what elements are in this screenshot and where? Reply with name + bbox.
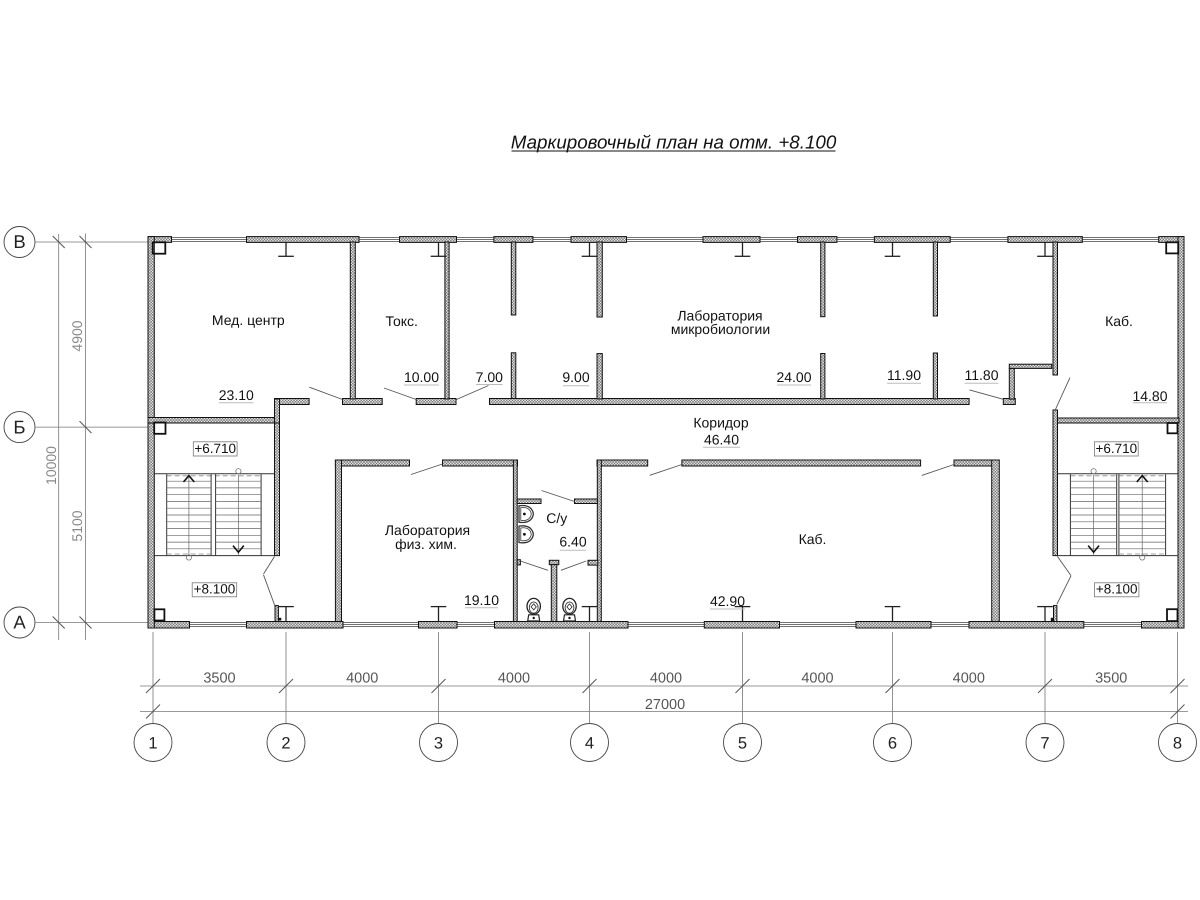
svg-text:6: 6	[888, 734, 897, 752]
svg-text:А: А	[13, 612, 26, 633]
svg-text:10000: 10000	[43, 446, 59, 485]
svg-text:физ. хим.: физ. хим.	[395, 536, 457, 552]
svg-text:+6.710: +6.710	[1095, 441, 1137, 456]
svg-text:9.00: 9.00	[562, 369, 589, 385]
svg-text:42.90: 42.90	[710, 593, 745, 609]
svg-text:7: 7	[1040, 734, 1049, 752]
svg-text:8: 8	[1173, 734, 1182, 752]
svg-text:Мед. центр: Мед. центр	[212, 312, 285, 328]
svg-text:Каб.: Каб.	[1105, 313, 1133, 329]
svg-text:4000: 4000	[498, 671, 530, 687]
svg-text:27000: 27000	[645, 697, 685, 713]
svg-text:23.10: 23.10	[219, 387, 254, 403]
svg-text:В: В	[13, 231, 25, 252]
svg-text:4000: 4000	[346, 671, 378, 687]
svg-text:19.10: 19.10	[464, 592, 499, 608]
svg-text:24.00: 24.00	[776, 369, 811, 385]
svg-text:Б: Б	[13, 416, 25, 437]
svg-text:14.80: 14.80	[1132, 388, 1167, 404]
svg-text:5100: 5100	[69, 510, 85, 541]
svg-text:46.40: 46.40	[704, 432, 739, 448]
svg-text:+6.710: +6.710	[194, 441, 236, 456]
svg-text:4000: 4000	[801, 671, 833, 687]
svg-text:4900: 4900	[69, 320, 85, 351]
svg-text:10.00: 10.00	[404, 369, 439, 385]
svg-text:11.90: 11.90	[887, 367, 921, 383]
svg-text:4000: 4000	[953, 671, 985, 687]
svg-text:Маркировочный план на отм. +8.: Маркировочный план на отм. +8.100	[511, 132, 837, 153]
svg-text:11.80: 11.80	[965, 367, 999, 383]
svg-text:Коридор: Коридор	[693, 415, 749, 431]
svg-text:4000: 4000	[650, 671, 682, 687]
svg-text:+8.100: +8.100	[194, 582, 236, 597]
svg-text:3: 3	[434, 734, 443, 752]
svg-text:С/у: С/у	[546, 510, 567, 526]
svg-text:микробиологии: микробиологии	[671, 321, 770, 337]
svg-text:+8.100: +8.100	[1096, 582, 1138, 597]
svg-text:2: 2	[281, 734, 290, 752]
svg-text:7.00: 7.00	[476, 369, 503, 385]
svg-text:5: 5	[738, 734, 747, 752]
svg-text:3500: 3500	[1095, 671, 1127, 687]
svg-text:6.40: 6.40	[559, 534, 586, 550]
svg-text:Каб.: Каб.	[799, 531, 827, 547]
svg-text:4: 4	[585, 734, 594, 752]
svg-text:3500: 3500	[203, 671, 235, 687]
svg-text:Токс.: Токс.	[385, 313, 417, 329]
svg-text:1: 1	[148, 734, 157, 752]
